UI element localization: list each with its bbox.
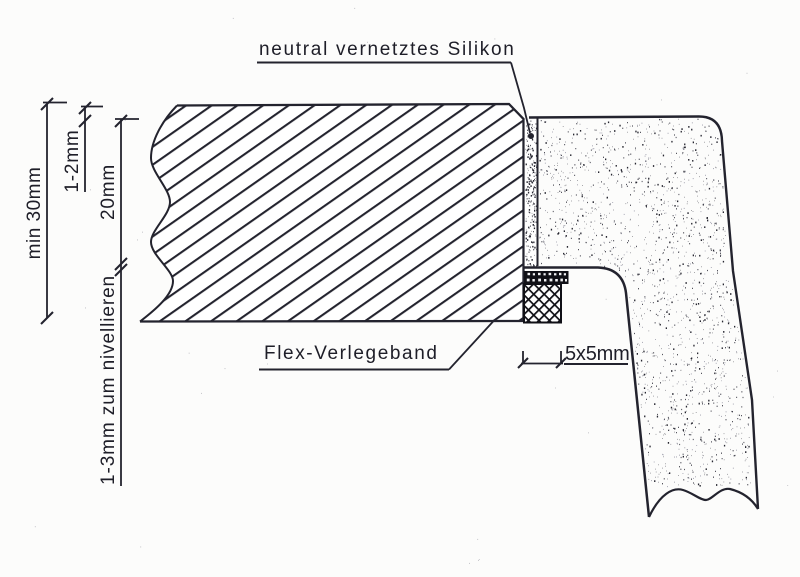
- svg-text:neutral vernetztes Silikon: neutral vernetztes Silikon: [259, 39, 515, 60]
- svg-text:5x5mm: 5x5mm: [565, 343, 630, 365]
- svg-text:1-3mm zum nivellieren: 1-3mm zum nivellieren: [98, 275, 119, 485]
- svg-text:Flex-Verlegeband: Flex-Verlegeband: [264, 343, 439, 364]
- svg-text:min 30mm: min 30mm: [24, 167, 45, 260]
- svg-text:20mm: 20mm: [98, 164, 119, 220]
- svg-text:1-2mm: 1-2mm: [62, 129, 83, 192]
